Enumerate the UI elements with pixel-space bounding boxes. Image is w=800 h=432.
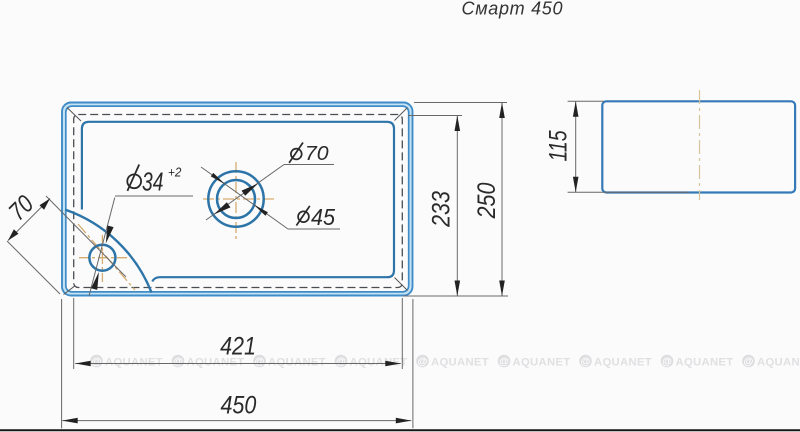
svg-text:@: @ (581, 357, 591, 368)
svg-text:AQUANET: AQUANET (350, 357, 408, 369)
svg-text:421: 421 (220, 332, 256, 360)
svg-text:@: @ (418, 357, 428, 368)
svg-text:AQUANET: AQUANET (513, 357, 571, 369)
svg-text:70: 70 (305, 142, 329, 165)
svg-text:AQUANET: AQUANET (676, 357, 734, 369)
svg-text:Смарm 450: Смарm 450 (462, 0, 563, 19)
svg-text:@: @ (336, 357, 346, 368)
svg-text:@: @ (499, 357, 509, 368)
svg-text:AQUANET: AQUANET (268, 357, 326, 369)
svg-text:233: 233 (427, 191, 455, 228)
svg-text:450: 450 (220, 391, 256, 419)
svg-text:45: 45 (311, 204, 336, 230)
svg-text:@: @ (173, 357, 183, 368)
svg-text:34: 34 (142, 167, 163, 197)
svg-text:@: @ (744, 357, 754, 368)
svg-text:AQUANET: AQUANET (105, 357, 163, 369)
svg-text:AQUANET: AQUANET (431, 357, 489, 369)
svg-text:AQUANET: AQUANET (757, 357, 800, 369)
svg-text:250: 250 (472, 183, 500, 220)
svg-text:AQUANET: AQUANET (594, 357, 652, 369)
svg-text:@: @ (662, 357, 672, 368)
svg-text:115: 115 (544, 130, 572, 162)
svg-text:@: @ (92, 357, 102, 368)
svg-text:@: @ (255, 357, 265, 368)
svg-text:+2: +2 (168, 165, 181, 180)
